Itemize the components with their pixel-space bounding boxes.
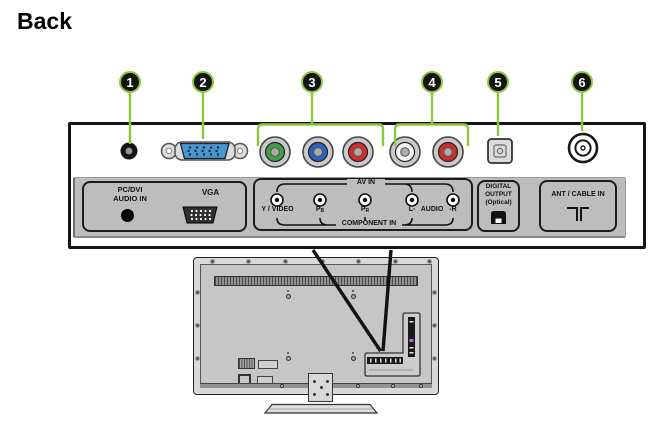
callout-2: 2 [192, 71, 214, 93]
y-video-label: Y / VIDEO [255, 206, 300, 214]
stand-neck [308, 373, 333, 402]
vesa-screw [350, 352, 356, 362]
label-jack-circles [271, 194, 459, 206]
component-y-jack-icon [260, 137, 290, 167]
connector-recess [363, 311, 425, 381]
vga-label: VGA [174, 188, 247, 197]
audio-left-jack-icon [390, 137, 420, 167]
coax-port-icon [569, 134, 597, 162]
audio-in-jack-icon [121, 143, 138, 160]
ant-cable-in-label: ANT / CABLE IN [539, 191, 617, 199]
audio-right-jack-icon [433, 137, 463, 167]
pc-dvi-audio-in-label: PC/DVI AUDIO IN [88, 186, 172, 203]
rear-plate [258, 360, 278, 369]
audio-label: AUDIO [418, 206, 446, 214]
manual-page-back-connections: Back 1 2 3 4 5 6 [0, 0, 670, 426]
side-ports-strip [408, 317, 415, 357]
vesa-screw [350, 290, 356, 300]
callout-5: 5 [487, 71, 509, 93]
component-in-label: COMPONENT IN [336, 220, 402, 228]
callout-3: 3 [301, 71, 323, 93]
vga-connector-glyph-icon [179, 206, 221, 225]
callout-6: 6 [571, 71, 593, 93]
vga-port-icon [162, 142, 248, 160]
antenna-glyph-icon [566, 206, 590, 223]
pr-label: PR [356, 206, 374, 215]
audio-r-label: -R [444, 206, 462, 214]
optical-glyph-icon [490, 210, 507, 226]
callout-4: 4 [421, 71, 443, 93]
speaker-grille [238, 358, 255, 369]
audio-in-dot-icon [121, 209, 134, 222]
component-pr-jack-icon [343, 137, 373, 167]
page-title: Back [17, 8, 72, 35]
av-in-label: AV IN [347, 179, 385, 187]
digital-output-label: DIGITAL OUTPUT (Optical) [477, 183, 520, 207]
pb-label: PB [311, 206, 329, 215]
optical-port-icon [488, 139, 512, 163]
vesa-screw [285, 352, 291, 362]
tv-rear-illustration [193, 257, 443, 422]
component-pb-jack-icon [303, 137, 333, 167]
vesa-screw [285, 290, 291, 300]
vent-grille [214, 276, 418, 286]
ports-row [68, 122, 646, 180]
stand-base [263, 403, 379, 415]
callout-1: 1 [119, 71, 141, 93]
